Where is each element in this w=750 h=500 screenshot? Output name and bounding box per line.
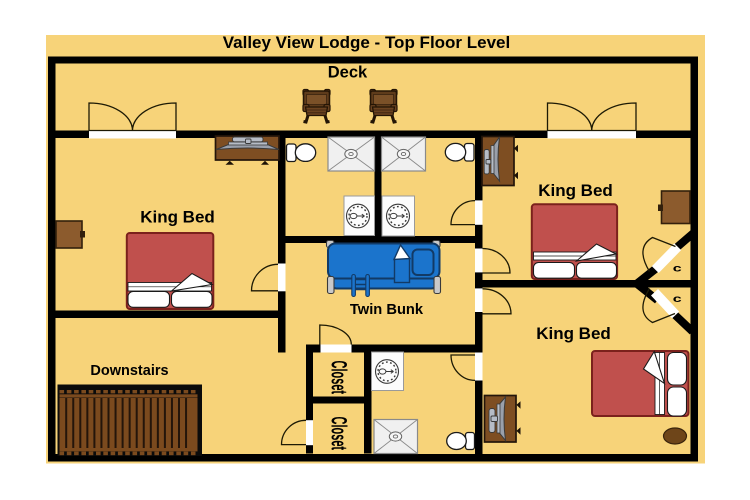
- svg-text:King Bed: King Bed: [140, 208, 215, 227]
- svg-text:King Bed: King Bed: [538, 181, 613, 200]
- svg-text:Deck: Deck: [328, 64, 368, 82]
- svg-text:Downstairs: Downstairs: [90, 363, 168, 379]
- svg-text:Closet: Closet: [326, 417, 351, 451]
- svg-text:c: c: [673, 292, 682, 304]
- svg-text:Closet: Closet: [326, 361, 351, 395]
- svg-text:Valley View Lodge - Top Floor: Valley View Lodge - Top Floor Level: [223, 33, 511, 52]
- svg-text:c: c: [673, 262, 682, 274]
- svg-text:King Bed: King Bed: [536, 324, 611, 343]
- svg-text:Twin Bunk: Twin Bunk: [350, 302, 424, 318]
